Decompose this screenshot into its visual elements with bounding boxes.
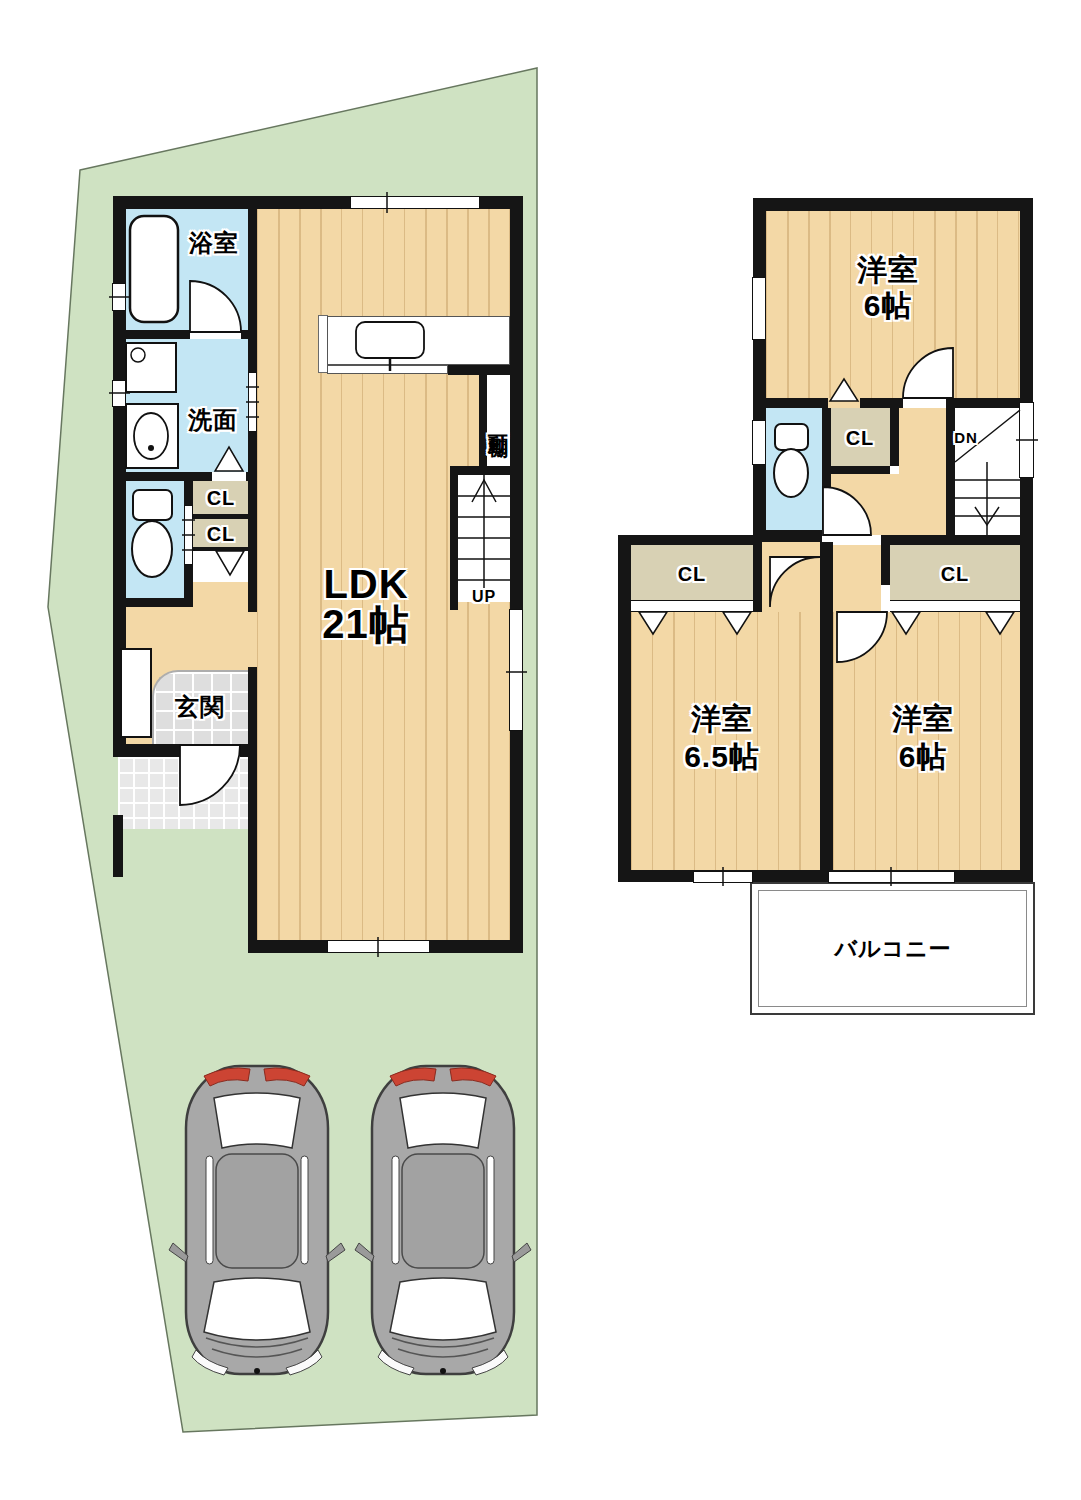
headlight-right-icon: [472, 1350, 508, 1375]
approach-tiles: [118, 757, 250, 829]
hall-2f-b: [831, 474, 946, 535]
hall-1f-upper: [193, 582, 248, 607]
closet-2f-right-shelf: [890, 600, 1020, 612]
washroom-label: 洗面: [188, 404, 238, 436]
closet-1f-b-label: CL: [207, 523, 236, 546]
wall-2f-mid-b: [881, 535, 1033, 545]
wall-toilet-2f-south: [757, 530, 822, 542]
opening-wash-door: [212, 472, 246, 481]
room-toilet-2f: [766, 408, 822, 530]
opening-bath-door: [190, 330, 241, 339]
hall-2f-a: [899, 408, 946, 474]
closet-2f-top-label: CL: [846, 427, 875, 450]
movable-shelf-label: 可動棚: [486, 419, 513, 422]
stairs-up-area: [458, 475, 510, 602]
car-roof: [402, 1154, 484, 1268]
entrance-label: 玄関: [175, 691, 225, 723]
wall-2f-west-upper: [753, 198, 766, 540]
hall-2f-c: [762, 542, 820, 612]
headlight-left-icon: [192, 1350, 228, 1375]
wall-2f-north: [753, 198, 1033, 211]
mirror-left: [355, 1243, 374, 1262]
closet-1f-a-label: CL: [207, 487, 236, 510]
window-wash-west: [112, 380, 126, 407]
closet-2f-left-shelf: [631, 600, 753, 612]
sliding-door-wash: [248, 372, 257, 432]
room-2f-right-size-label: 6帖: [899, 737, 948, 778]
wall-shelf-south: [458, 466, 523, 475]
wall-2f-mid-a: [618, 535, 762, 545]
taillight-right-icon: [450, 1068, 496, 1086]
room-2f-right-name-label: 洋室: [892, 699, 954, 740]
car-2: [355, 1066, 531, 1375]
mirror-right: [512, 1243, 531, 1262]
mirror-left: [169, 1243, 188, 1262]
side-window-left: [206, 1156, 213, 1264]
headlight-left-icon: [378, 1350, 414, 1375]
stairs-down-area: [955, 408, 1020, 535]
window-2f-right-south: [828, 871, 955, 883]
window-2f-left-south: [693, 871, 753, 883]
ldk-size-label: 21帖: [322, 597, 410, 652]
opening-hall-ldk: [248, 612, 257, 667]
taillight-right-icon: [264, 1068, 310, 1086]
closet-front: [193, 549, 248, 582]
bath-label: 浴室: [189, 227, 239, 259]
rear-window: [400, 1093, 486, 1148]
taillight-left-icon: [204, 1068, 250, 1086]
wall-2f-south: [618, 870, 1033, 882]
kitchen-counter-lip: [327, 365, 448, 374]
room-2f-left-size-label: 6.5帖: [684, 737, 760, 778]
wall-2f-stub-a: [753, 535, 762, 612]
room-2f-top-size-label: 6帖: [864, 286, 913, 327]
opening-room-top: [828, 398, 860, 408]
window-2f-toilet-west: [752, 420, 766, 465]
wall-cl-2f-top-east: [890, 408, 899, 466]
room-2f-left-name-label: 洋室: [691, 699, 753, 740]
stairs-down-label: DN: [954, 429, 978, 446]
wall-cl-2f-top-south: [831, 466, 890, 474]
wall-divider-a: [248, 209, 257, 372]
window-ldk-east: [509, 609, 523, 731]
kitchen-counter: [327, 316, 510, 365]
side-window-right: [487, 1156, 494, 1264]
car-1: [169, 1066, 345, 1375]
closet-2f-left-label: CL: [678, 563, 707, 586]
wall-toilet-south: [126, 598, 193, 607]
balcony-label: バルコニー: [834, 934, 951, 964]
headlight-right-icon: [286, 1350, 322, 1375]
wall-yard-stub: [113, 815, 123, 877]
wall-divider-c: [248, 667, 257, 744]
opening-entrance-door: [180, 744, 240, 757]
wall-stairs-2f-west: [946, 398, 955, 535]
shoe-cabinet: [120, 648, 152, 738]
wall-1f-east: [510, 196, 523, 953]
window-ldk-north: [350, 196, 480, 209]
wall-toilet-2f-east: [822, 408, 831, 530]
stairs-up-label: UP: [472, 588, 496, 606]
wall-2f-rooms-divider: [820, 542, 833, 870]
wall-cl-bottom: [193, 547, 248, 551]
wall-2f-stub-b: [881, 535, 890, 585]
hall-2f-d: [832, 545, 881, 612]
room-toilet-1f: [126, 481, 184, 598]
wall-2f-room-top-south-b: [860, 398, 903, 408]
wall-2f-west-lower: [618, 535, 631, 882]
wall-stairs-west: [450, 466, 458, 610]
side-window-left: [392, 1156, 399, 1264]
floor-plan-canvas: 浴室 洗面 CL CL 玄関 LDK 21帖 可動棚 UP 洋室 6帖 CL D…: [0, 0, 1081, 1500]
sliding-door-toilet: [184, 505, 193, 565]
window-bath-west: [112, 283, 126, 311]
wall-divider-b: [248, 432, 257, 612]
room-2f-top-name-label: 洋室: [857, 250, 919, 291]
window-2f-top-west: [752, 277, 766, 340]
taillight-left-icon: [390, 1068, 436, 1086]
wall-cl-divider: [193, 514, 248, 519]
windshield: [204, 1278, 310, 1340]
window-2f-stairs-east: [1019, 402, 1034, 478]
wall-ldk-west-lower: [248, 744, 257, 953]
wall-2f-room-top-south-a: [753, 398, 828, 408]
car-roof: [216, 1154, 298, 1268]
window-ldk-south: [327, 940, 430, 953]
windshield: [390, 1278, 496, 1340]
mirror-right: [326, 1243, 345, 1262]
rear-window: [214, 1093, 300, 1148]
closet-2f-right-label: CL: [941, 563, 970, 586]
side-window-right: [301, 1156, 308, 1264]
